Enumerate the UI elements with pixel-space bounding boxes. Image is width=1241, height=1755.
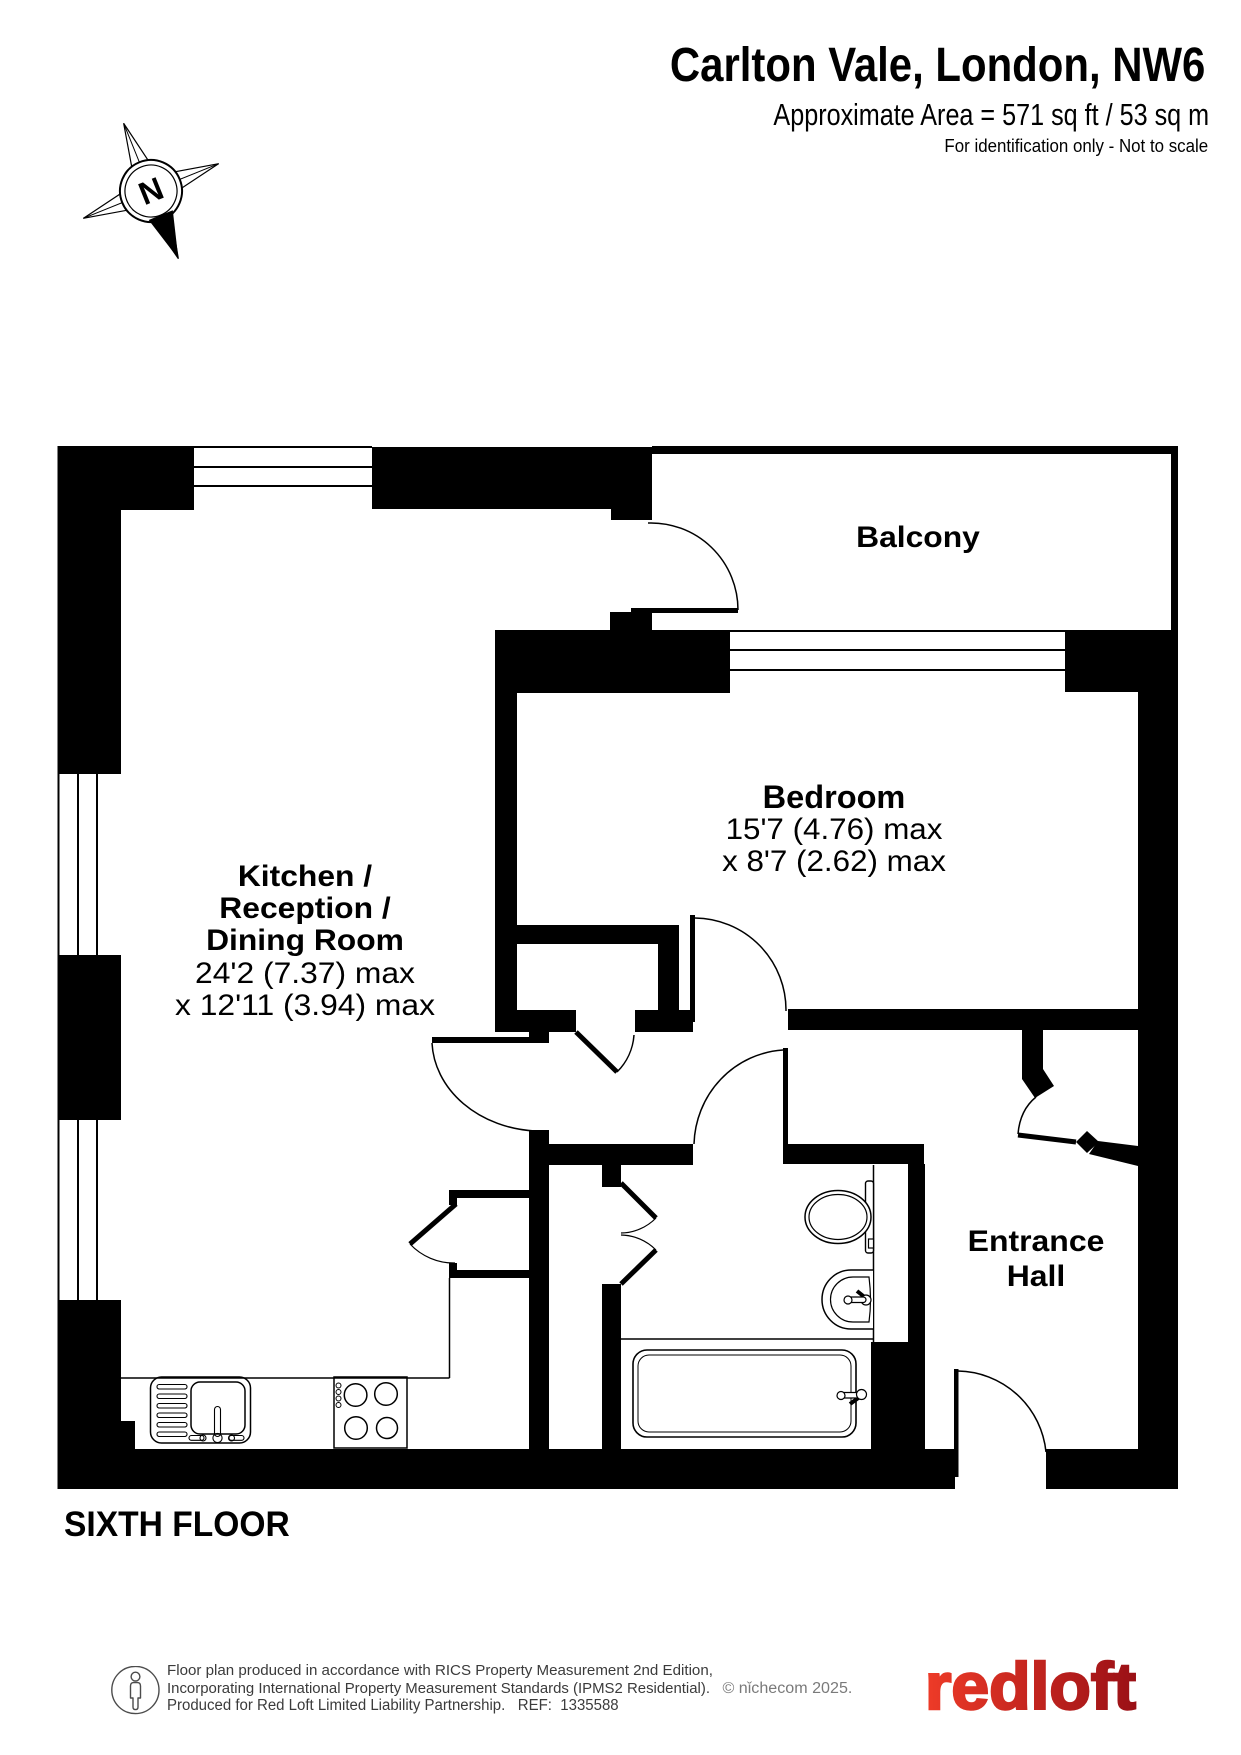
svg-text:redloft: redloft (925, 1649, 1136, 1723)
